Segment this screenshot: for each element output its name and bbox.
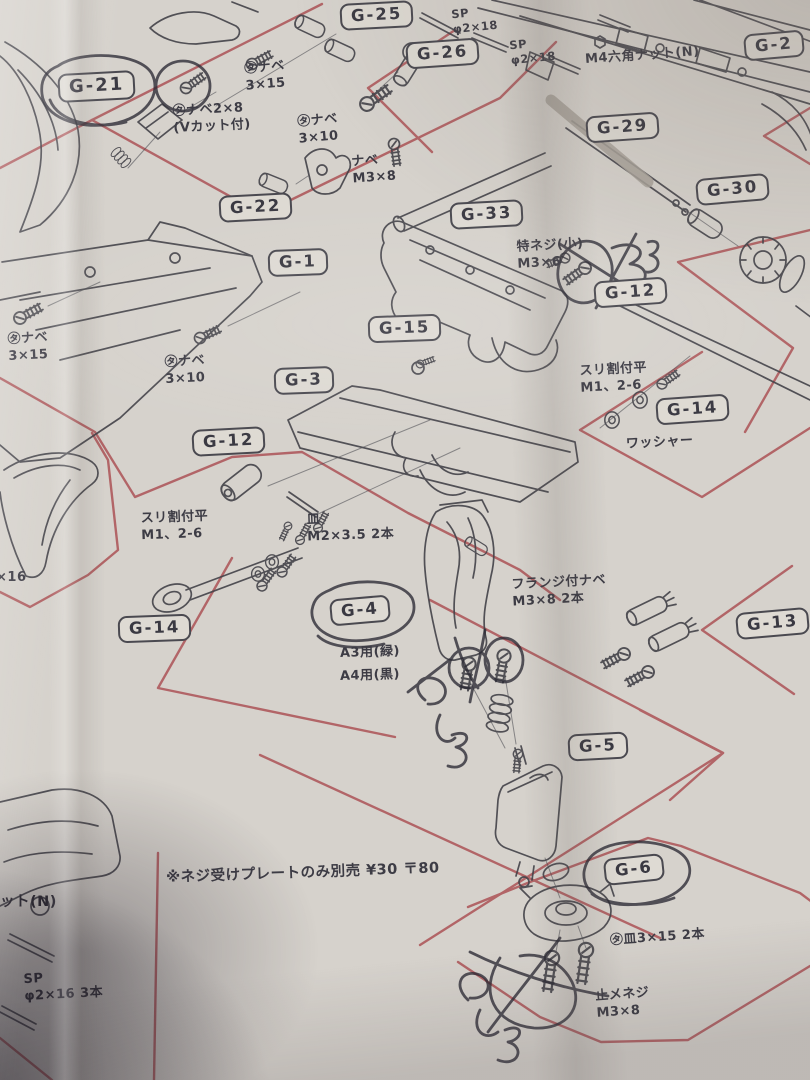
annotation-suri-wari-left: スリ割付平 M1、2-6 xyxy=(140,509,209,545)
annotation-suri-wari-right: スリ割付平 M1、2-6 xyxy=(579,360,648,397)
annotation-ta-nabe-3x10-top: ㋟ナベ 3×10 xyxy=(297,111,340,148)
part-label-g14-right: G-14 xyxy=(655,393,730,425)
parts-diagram-photo: G-25 G-26 G-2 G-21 G-22 G-29 G-30 G-1 G-… xyxy=(0,0,810,1080)
g22-part-drawing xyxy=(257,149,350,195)
pen-strokes-grip xyxy=(455,630,485,702)
part-label-g12-upper: G-12 xyxy=(593,276,668,308)
annotation-toku-neji: 特ネジ(小) M3×6 xyxy=(516,236,585,273)
g14-left-part-drawing xyxy=(149,548,302,617)
annotation-ta-nabe-3x10-mid: ㋟ナベ 3×10 xyxy=(164,353,206,389)
part-label-g22: G-22 xyxy=(218,192,293,222)
annotation-sp-2x18-b: SP φ2×18 xyxy=(509,34,557,68)
pen-handwriting-bottom-3 xyxy=(498,1028,520,1062)
annotation-washer: ワッシャー xyxy=(626,433,694,453)
part-label-g3: G-3 xyxy=(274,366,335,395)
annotation-flange-nabe: フランジ付ナベ M3×8 2本 xyxy=(511,573,607,612)
annotation-a3-green: A3用(緑) xyxy=(340,644,401,663)
part-label-g25: G-25 xyxy=(339,0,414,30)
part-label-g5: G-5 xyxy=(567,731,628,761)
pen-handwriting-grip-3 xyxy=(448,733,467,767)
grip-screws-drawing xyxy=(458,648,516,748)
pen-handwriting-grip-a xyxy=(418,678,455,742)
top-left-lever-drawing xyxy=(150,2,258,44)
part-label-g2: G-2 xyxy=(743,29,805,61)
annotation-nut-partial: ット(N) xyxy=(0,893,57,912)
pen-scribble-g12-b xyxy=(646,241,658,272)
handguard-channel-drawing xyxy=(0,453,98,577)
part-label-g29: G-29 xyxy=(585,111,660,143)
flange-screws-drawing xyxy=(600,646,656,689)
part-label-g33: G-33 xyxy=(449,199,524,229)
part-label-g26: G-26 xyxy=(405,37,480,69)
diagram-drawing-layer xyxy=(0,0,810,1080)
annotation-tome-neji: 止メネジ M3×8 xyxy=(595,985,651,1022)
annotation-sp-2x16: SP φ2×16 3本 xyxy=(23,968,103,1006)
g30-part-drawing xyxy=(683,206,809,295)
part-label-g1: G-1 xyxy=(268,248,329,277)
part-label-g15: G-15 xyxy=(368,314,442,343)
annotation-a4-black: A4用(黒) xyxy=(340,667,401,686)
red-zone-borders xyxy=(0,4,810,1080)
annotation-sara-m2x35: 皿 M2×3.5 2本 xyxy=(306,509,394,546)
foregrip-top-drawing xyxy=(0,42,79,232)
part-label-g14-left: G-14 xyxy=(118,614,192,643)
annotation-ta-nabe-3x15-left: ㋟ナベ 3×15 xyxy=(7,330,49,366)
annotation-ta-nabe-2x8: ㋟ナベ2×8 (Vカット付) xyxy=(172,100,251,138)
g13-screws-drawing xyxy=(624,590,699,653)
grip-spring-drawing xyxy=(486,693,523,773)
part-label-g4: G-4 xyxy=(329,594,391,626)
annotation-x16-partial: ×16 xyxy=(0,570,26,587)
pen-annotations xyxy=(42,56,690,1062)
part-label-g12-left: G-12 xyxy=(191,426,266,456)
annotation-nabe-m3x8: ナベ M3×8 xyxy=(351,152,397,189)
part-label-g21: G-21 xyxy=(57,70,136,103)
annotation-sp-2x18-a: SP φ2×18 xyxy=(451,3,499,37)
annotation-ta-nabe-3x15-top: ㋟ナベ 3×15 xyxy=(244,58,287,95)
